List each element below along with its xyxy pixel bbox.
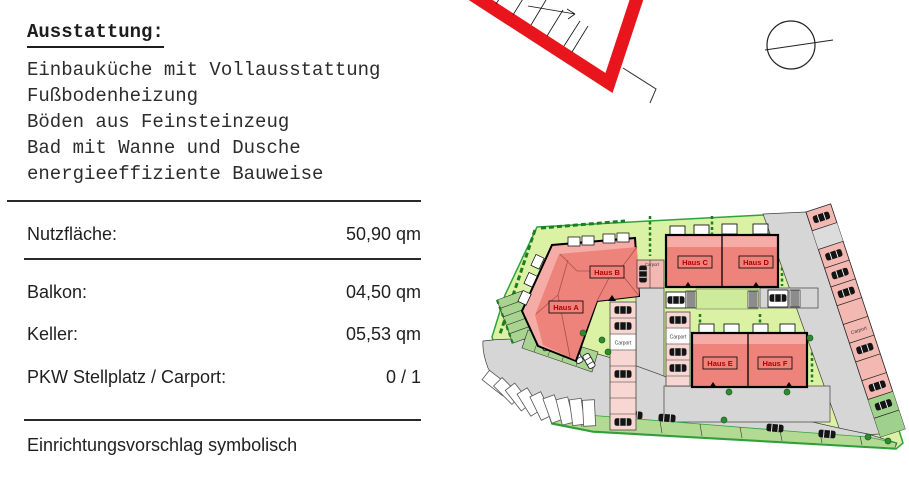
divider-line bbox=[24, 258, 421, 260]
carport-label: Carport bbox=[670, 335, 687, 341]
road-courtyard bbox=[664, 386, 830, 422]
feature-item: Fußbodenheizung bbox=[27, 83, 380, 109]
spec-label: Balkon: bbox=[27, 282, 87, 303]
svg-text:Haus A: Haus A bbox=[553, 303, 579, 312]
svg-text:Haus D: Haus D bbox=[743, 258, 769, 267]
label-haus-c: Haus C bbox=[678, 256, 712, 268]
carport-column-middle: Carport bbox=[666, 312, 690, 386]
carport-column-left: Carport bbox=[610, 302, 636, 430]
label-haus-d: Haus D bbox=[739, 256, 773, 268]
spec-value: 05,53 qm bbox=[346, 324, 421, 345]
feature-item: Böden aus Feinsteinzeug bbox=[27, 109, 380, 135]
feature-item: Einbauküche mit Vollausstattung bbox=[27, 57, 380, 83]
spec-value: 0 / 1 bbox=[386, 367, 421, 388]
footnote: Einrichtungsvorschlag symbolisch bbox=[27, 435, 297, 456]
spec-value: 04,50 qm bbox=[346, 282, 421, 303]
north-symbol bbox=[765, 21, 833, 69]
svg-text:Haus B: Haus B bbox=[594, 268, 620, 277]
features-list: Einbauküche mit Vollausstattung Fußboden… bbox=[27, 57, 380, 187]
site-plan: Carport Carport bbox=[440, 0, 909, 500]
feature-item: energieeffiziente Bauweise bbox=[27, 161, 380, 187]
label-haus-a: Haus A bbox=[549, 301, 583, 313]
page: Ausstattung: Einbauküche mit Vollausstat… bbox=[0, 0, 909, 500]
spec-label: PKW Stellplatz / Carport: bbox=[27, 367, 226, 388]
spec-label: Keller: bbox=[27, 324, 78, 345]
panel-title: Ausstattung: bbox=[27, 21, 164, 48]
divider-line bbox=[7, 200, 421, 202]
spec-label: Nutzfläche: bbox=[27, 224, 117, 245]
neighbor-building-outline bbox=[459, 0, 656, 103]
feature-item: Bad mit Wanne und Dusche bbox=[27, 135, 380, 161]
divider-line bbox=[24, 419, 421, 421]
label-haus-f: Haus F bbox=[758, 357, 792, 369]
carport-near-haus-b: Carport bbox=[637, 260, 664, 288]
spec-value: 50,90 qm bbox=[346, 224, 421, 245]
label-haus-e: Haus E bbox=[703, 357, 737, 369]
label-haus-b: Haus B bbox=[590, 266, 624, 278]
info-panel: Ausstattung: Einbauküche mit Vollausstat… bbox=[0, 0, 440, 500]
svg-text:Haus E: Haus E bbox=[707, 359, 732, 368]
carport-label: Carport bbox=[615, 341, 632, 347]
svg-text:Haus C: Haus C bbox=[682, 258, 708, 267]
carport-label: Carport bbox=[645, 262, 660, 267]
svg-text:Haus F: Haus F bbox=[762, 359, 787, 368]
